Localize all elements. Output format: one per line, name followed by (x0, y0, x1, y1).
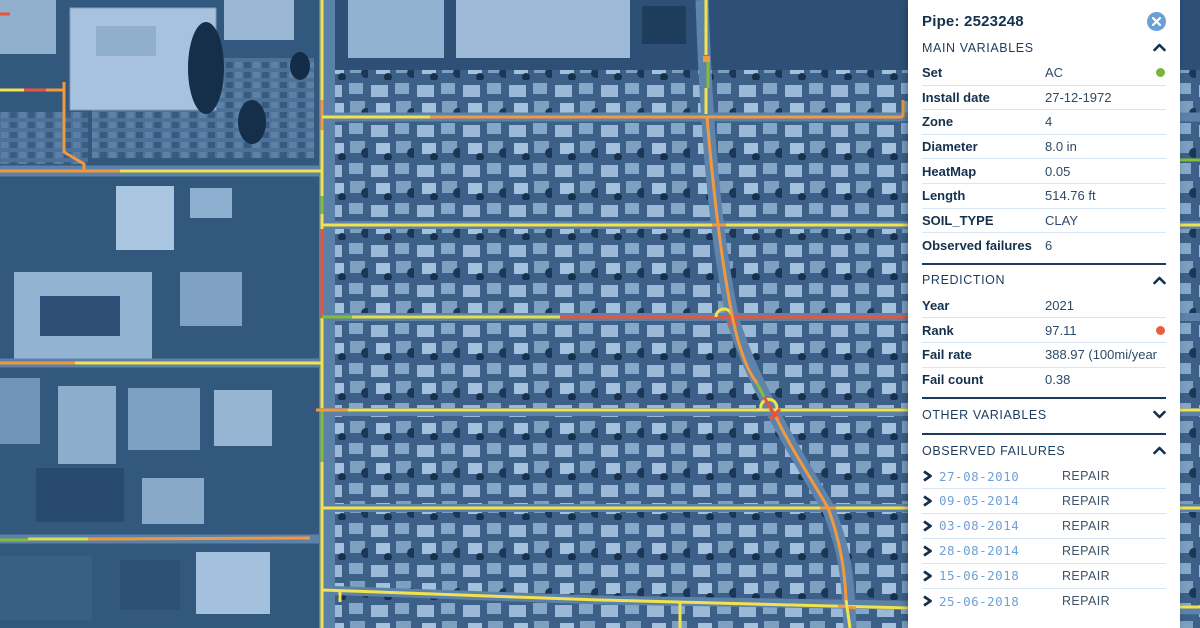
row-label: HeatMap (922, 164, 1045, 179)
main-variables-rows: Set AC Install date 27-12-1972 Zone 4 Di… (922, 61, 1166, 258)
failure-date-link[interactable]: 09-05-2014 (939, 493, 1045, 508)
table-row: Observed failures 6 (922, 233, 1166, 258)
chevron-right-icon[interactable] (922, 495, 933, 507)
failure-row[interactable]: 09-05-2014 REPAIR (922, 489, 1166, 514)
table-row: Rank 97.11 (922, 318, 1166, 343)
prediction-rows: Year 2021 Rank 97.11 Fail rate 388.97 (1… (922, 294, 1166, 392)
row-label: Install date (922, 90, 1045, 105)
table-row: Fail count 0.38 (922, 368, 1166, 393)
observed-failures-rows: 27-08-2010 REPAIR 09-05-2014 REPAIR 03-0… (922, 464, 1166, 613)
row-value: CLAY (1045, 213, 1078, 228)
section-label: OTHER VARIABLES (922, 408, 1047, 422)
row-label: Fail count (922, 372, 1045, 387)
status-dot-red (1156, 326, 1165, 335)
table-row: Zone 4 (922, 110, 1166, 135)
page-title: Pipe: 2523248 (922, 13, 1024, 30)
row-value: 97.11 (1045, 323, 1077, 338)
row-label: Fail rate (922, 347, 1045, 362)
chevron-down-icon[interactable] (1153, 410, 1166, 419)
status-dot-green (1156, 68, 1165, 77)
chevron-right-icon[interactable] (922, 545, 933, 557)
failure-row[interactable]: 15-06-2018 REPAIR (922, 564, 1166, 589)
row-value: 4 (1045, 114, 1052, 129)
row-label: SOIL_TYPE (922, 213, 1045, 228)
section-label: PREDICTION (922, 273, 1005, 287)
app-window: Pipe: 2523248 MAIN VARIABLES Set AC Inst… (0, 0, 1200, 628)
section-label: MAIN VARIABLES (922, 41, 1034, 55)
chevron-up-icon[interactable] (1153, 276, 1166, 285)
failure-type: REPAIR (1062, 544, 1110, 558)
chevron-right-icon[interactable] (922, 520, 933, 532)
failure-type: REPAIR (1062, 594, 1110, 608)
row-value: 6 (1045, 238, 1052, 253)
failure-type: REPAIR (1062, 469, 1110, 483)
section-observed-failures[interactable]: OBSERVED FAILURES (922, 437, 1166, 464)
row-value: 27-12-1972 (1045, 90, 1112, 105)
chevron-up-icon[interactable] (1153, 446, 1166, 455)
chevron-up-icon[interactable] (1153, 43, 1166, 52)
failure-type: REPAIR (1062, 494, 1110, 508)
table-row: HeatMap 0.05 (922, 159, 1166, 184)
row-label: Zone (922, 114, 1045, 129)
failure-type: REPAIR (1062, 569, 1110, 583)
close-button[interactable] (1147, 12, 1166, 31)
row-value: 0.38 (1045, 372, 1070, 387)
row-label: Set (922, 65, 1045, 80)
chevron-right-icon[interactable] (922, 570, 933, 582)
table-row: Fail rate 388.97 (100mi/year (922, 343, 1166, 368)
row-value: 388.97 (100mi/year (1045, 347, 1157, 362)
failure-date-link[interactable]: 15-06-2018 (939, 568, 1045, 583)
row-value: 0.05 (1045, 164, 1070, 179)
table-row: Install date 27-12-1972 (922, 86, 1166, 111)
section-prediction[interactable]: PREDICTION (922, 267, 1166, 294)
section-divider (922, 263, 1166, 265)
close-icon (1152, 17, 1161, 26)
section-label: OBSERVED FAILURES (922, 444, 1065, 458)
row-label: Diameter (922, 139, 1045, 154)
row-value: 8.0 in (1045, 139, 1077, 154)
row-value: AC (1045, 65, 1063, 80)
section-other-variables[interactable]: OTHER VARIABLES (922, 401, 1166, 428)
table-row: Year 2021 (922, 294, 1166, 319)
pipe-details-panel: Pipe: 2523248 MAIN VARIABLES Set AC Inst… (908, 0, 1180, 628)
table-row: Set AC (922, 61, 1166, 86)
failure-date-link[interactable]: 28-08-2014 (939, 543, 1045, 558)
failure-row[interactable]: 27-08-2010 REPAIR (922, 464, 1166, 489)
failure-row[interactable]: 03-08-2014 REPAIR (922, 514, 1166, 539)
failure-row[interactable]: 25-06-2018 REPAIR (922, 589, 1166, 614)
row-label: Length (922, 188, 1045, 203)
table-row: Length 514.76 ft (922, 184, 1166, 209)
row-value: 2021 (1045, 298, 1074, 313)
failure-date-link[interactable]: 25-06-2018 (939, 594, 1045, 609)
row-value: 514.76 ft (1045, 188, 1096, 203)
section-main-variables[interactable]: MAIN VARIABLES (922, 34, 1166, 61)
chevron-right-icon[interactable] (922, 470, 933, 482)
row-label: Observed failures (922, 238, 1045, 253)
section-divider (922, 433, 1166, 435)
table-row: SOIL_TYPE CLAY (922, 209, 1166, 234)
failure-row[interactable]: 28-08-2014 REPAIR (922, 539, 1166, 564)
pipe-node[interactable] (703, 56, 710, 62)
row-label: Rank (922, 323, 1045, 338)
chevron-right-icon[interactable] (922, 595, 933, 607)
failure-date-link[interactable]: 27-08-2010 (939, 469, 1045, 484)
table-row: Diameter 8.0 in (922, 135, 1166, 160)
section-divider (922, 397, 1166, 399)
panel-header: Pipe: 2523248 (922, 0, 1166, 34)
failure-date-link[interactable]: 03-08-2014 (939, 518, 1045, 533)
pipe-line[interactable] (88, 538, 310, 539)
row-label: Year (922, 298, 1045, 313)
failure-type: REPAIR (1062, 519, 1110, 533)
